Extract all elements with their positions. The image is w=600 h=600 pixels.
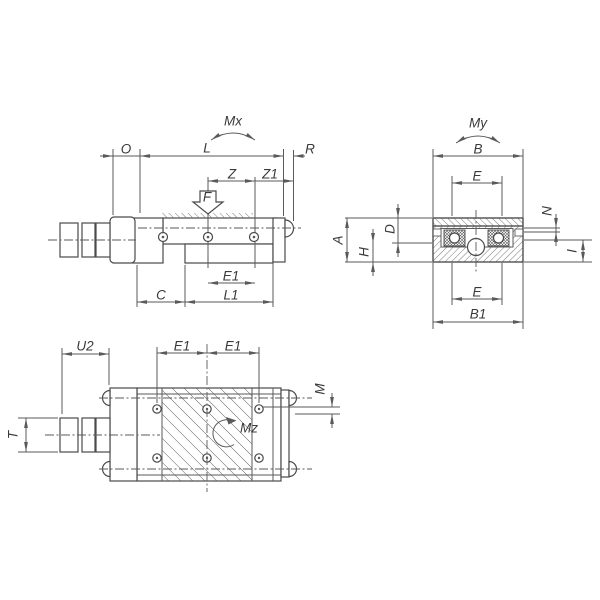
dim-label-e1-right: E1 bbox=[225, 339, 242, 353]
dim-label-b1: B1 bbox=[470, 307, 487, 321]
base-block bbox=[185, 244, 273, 263]
dim-label-e-bottom: E bbox=[472, 285, 481, 299]
moment-label-mx: Mx bbox=[224, 114, 242, 128]
dim-label-n: N bbox=[540, 206, 554, 216]
technical-drawing-canvas: Mx O L R Z Z1 F E1 C L1 My B E A D H N I… bbox=[0, 0, 600, 600]
dim-label-r: R bbox=[305, 142, 315, 156]
micrometer-bracket bbox=[133, 218, 163, 263]
plan-right-bracket bbox=[281, 390, 289, 477]
dim-label-z: Z bbox=[228, 167, 236, 181]
slot-notch-right bbox=[515, 229, 523, 236]
spindle-tip bbox=[285, 220, 294, 237]
dim-label-u2: U2 bbox=[76, 339, 93, 353]
dim-label-l1: L1 bbox=[223, 288, 238, 302]
slot-notch-left bbox=[433, 229, 441, 236]
ball-left bbox=[450, 233, 460, 243]
ball-right bbox=[494, 233, 504, 243]
engineering-drawing bbox=[0, 0, 600, 600]
side-view bbox=[48, 133, 305, 307]
dim-label-e1-left: E1 bbox=[174, 339, 191, 353]
dim-label-c: C bbox=[156, 288, 166, 302]
dim-label-e-top: E bbox=[472, 169, 481, 183]
dim-label-t: T bbox=[6, 431, 20, 439]
slide-rail bbox=[163, 218, 276, 244]
force-label-f: F bbox=[203, 190, 211, 204]
moment-mx-arc bbox=[211, 133, 255, 140]
dim-label-b: B bbox=[473, 142, 482, 156]
moment-label-my: My bbox=[469, 116, 487, 130]
moment-label-mz: Mz bbox=[240, 421, 258, 435]
plan-left-bracket bbox=[110, 388, 137, 481]
dim-label-i: I bbox=[565, 249, 579, 253]
dim-label-a: A bbox=[331, 235, 345, 244]
plan-table-hatch bbox=[162, 389, 252, 481]
section-table bbox=[433, 218, 523, 226]
dim-label-d: D bbox=[383, 224, 397, 234]
dim-label-o: O bbox=[121, 142, 132, 156]
dim-label-z1: Z1 bbox=[262, 167, 278, 181]
plan-view bbox=[18, 344, 340, 492]
end-plate bbox=[273, 218, 285, 262]
dim-label-m: M bbox=[313, 383, 327, 394]
dim-label-e1-side: E1 bbox=[223, 269, 240, 283]
dim-label-h: H bbox=[357, 247, 371, 257]
dim-label-l: L bbox=[203, 141, 211, 155]
